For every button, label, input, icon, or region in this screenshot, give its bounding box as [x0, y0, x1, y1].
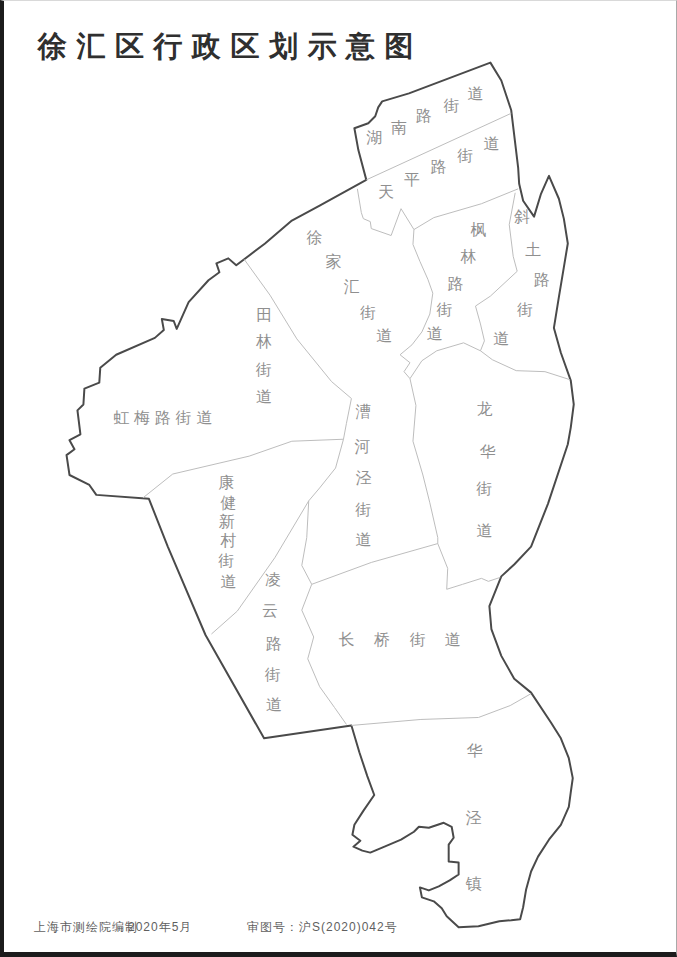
region-label-char: 街 [457, 147, 474, 164]
region-label-char: 健 [219, 494, 236, 511]
region-label-char: 平 [404, 171, 420, 188]
footer-publisher: 上海市测绘院编制 [34, 919, 138, 936]
region-label-char: 街 [443, 97, 460, 114]
region-label-char: 街 [475, 480, 492, 497]
region-label-hongmei-road-subdistrict: 虹梅路街道 [113, 409, 212, 426]
region-label-char: 路 [431, 158, 447, 175]
region-label-char: 路 [534, 271, 550, 288]
region-label-char: 南 [391, 119, 407, 136]
region-label-char: 路 [155, 409, 171, 426]
region-label-char: 徐 [306, 229, 323, 246]
region-label-char: 村 [219, 532, 236, 549]
region-label-char: 道 [376, 327, 392, 344]
region-label-char: 新 [218, 513, 234, 530]
region-label-char: 街 [175, 409, 192, 426]
region-label-char: 街 [359, 304, 376, 321]
region-label-char: 路 [448, 275, 464, 292]
region-label-char: 华 [479, 443, 495, 460]
region-label-char: 家 [326, 253, 342, 270]
region-label-char: 道 [476, 522, 492, 539]
map-page: 徐汇区行政区划示意图 湖南路街道天平路街道徐家汇街道枫林路街道斜土路街道田林街道… [0, 0, 677, 957]
footer-date: 2020年5月 [128, 919, 192, 936]
region-label-char: 街 [409, 631, 426, 648]
region-label-char: 路 [266, 635, 282, 652]
region-label-char: 道 [197, 409, 213, 426]
region-label-char: 道 [493, 330, 509, 347]
region-label-char: 路 [416, 107, 432, 124]
region-label-char: 华 [467, 742, 483, 759]
footer: 上海市测绘院编制 2020年5月 审图号：沪S(2020)042号 [4, 919, 676, 939]
region-label-char: 康 [218, 474, 234, 491]
region-label-char: 街 [264, 666, 281, 683]
region-label-char: 田 [256, 306, 272, 323]
region-label-char: 道 [445, 631, 461, 648]
region-label-char: 斜 [513, 208, 530, 225]
region-label-char: 道 [483, 135, 499, 152]
region-label-char: 梅 [133, 409, 150, 426]
region-label-char: 林 [460, 248, 477, 265]
region-label-char: 虹 [113, 409, 129, 426]
district-boundary [67, 63, 574, 928]
region-label-char: 河 [354, 438, 370, 455]
region-label-char: 泾 [466, 809, 482, 826]
region-label-char: 道 [427, 325, 443, 342]
region-label-char: 云 [262, 602, 278, 619]
region-label-char: 街 [436, 301, 453, 318]
region-label-char: 镇 [466, 875, 482, 892]
region-label-char: 街 [217, 552, 234, 569]
region-label-char: 土 [525, 241, 541, 258]
region-label-char: 道 [220, 573, 236, 590]
region-label-char: 街 [354, 501, 371, 518]
region-label-char: 天 [378, 183, 394, 200]
region-label-char: 街 [255, 361, 272, 378]
region-label-char: 枫 [471, 221, 487, 238]
region-label-char: 道 [256, 388, 272, 405]
region-label-char: 汇 [343, 278, 359, 295]
region-label-char: 道 [468, 85, 484, 102]
region-label-char: 街 [516, 301, 533, 318]
region-label-char: 泾 [355, 469, 371, 486]
district-map: 湖南路街道天平路街道徐家汇街道枫林路街道斜土路街道田林街道虹梅路街道康健新村街道… [4, 1, 676, 952]
region-label-char: 桥 [373, 631, 390, 648]
footer-approval: 审图号：沪S(2020)042号 [247, 919, 398, 936]
region-label-char: 林 [255, 333, 272, 350]
region-label-char: 道 [355, 531, 371, 548]
region-label-char: 凌 [265, 571, 281, 588]
region-label-char: 龙 [476, 400, 492, 417]
region-label-char: 长 [339, 631, 355, 648]
region-label-char: 湖 [366, 129, 382, 146]
region-label-char: 道 [266, 696, 282, 713]
region-label-char: 漕 [355, 403, 371, 420]
